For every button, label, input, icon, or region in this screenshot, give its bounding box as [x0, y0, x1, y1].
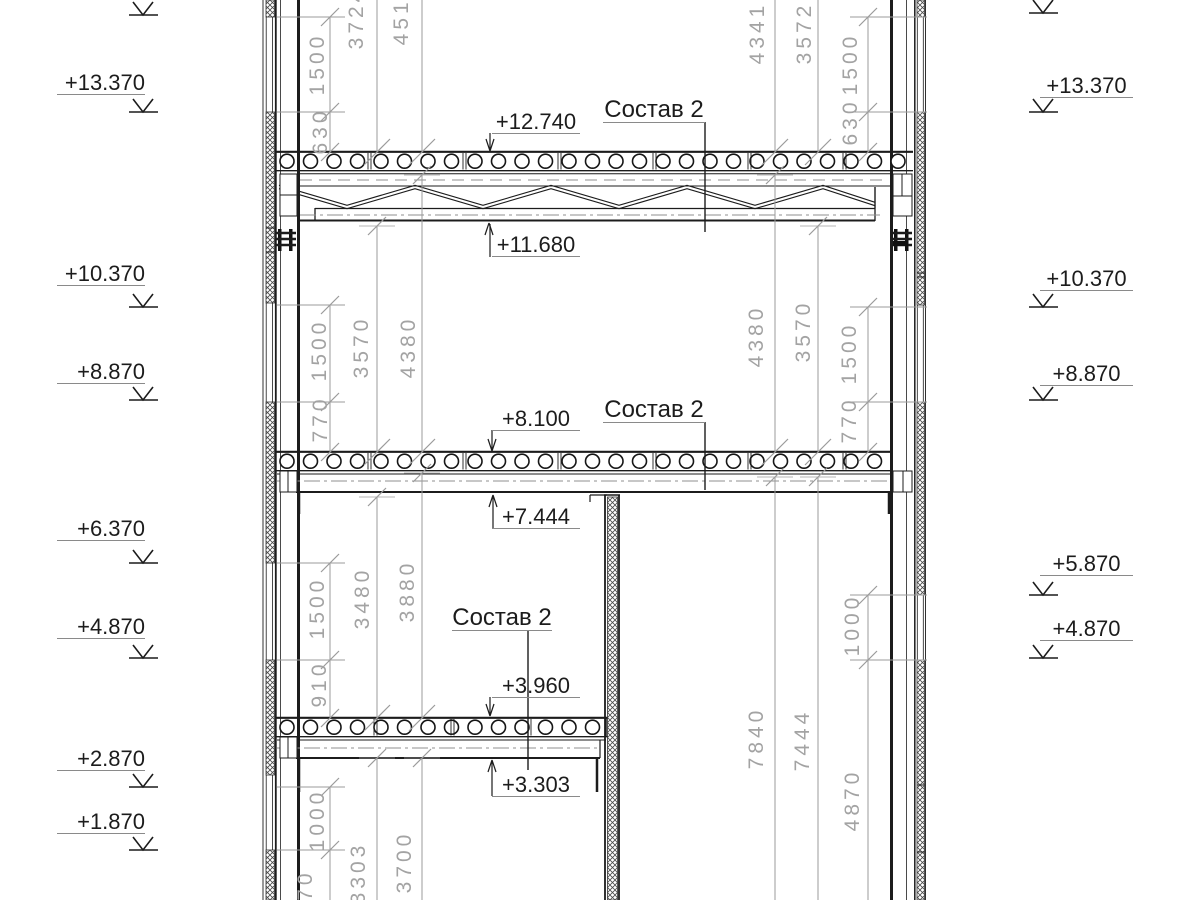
dimension-label: 3480 — [351, 567, 375, 630]
elevation-mark-right-3: +5.870 — [1040, 552, 1133, 576]
elevation-mark-left-0: +13.370 — [57, 71, 145, 95]
elevation-mark-right-4: +4.870 — [1040, 617, 1133, 641]
elevation-mark-left-5: +2.870 — [57, 747, 145, 771]
dimension-label: 3570 — [350, 316, 374, 379]
drawing-linework — [0, 0, 1200, 900]
elevation-mark-right-2: +8.870 — [1040, 362, 1133, 386]
dimension-label: 630 — [309, 107, 333, 154]
dimension-label: 7840 — [745, 707, 769, 770]
dimension-label: 3724 — [345, 0, 369, 49]
composition-label-middle: Состав 2 — [603, 397, 705, 423]
elevation-mark-left-4: +4.870 — [57, 615, 145, 639]
dimension-label: 1000 — [306, 789, 330, 852]
dimension-label: 1000 — [841, 594, 865, 657]
dimension-label: 970 — [294, 869, 318, 900]
elevation-mark-left-2: +8.870 — [57, 360, 145, 384]
dimension-label: 910 — [308, 660, 332, 707]
dimension-label: 7444 — [791, 709, 815, 772]
dimension-label: 1500 — [308, 319, 332, 382]
level-callout-11680: +11.680 — [492, 233, 580, 257]
level-callout-3960: +3.960 — [492, 674, 580, 698]
elevation-mark-left-1: +10.370 — [57, 262, 145, 286]
dimension-label: 3880 — [396, 560, 420, 623]
level-callout-7444: +7.444 — [492, 505, 580, 529]
dimension-label: 3572 — [793, 2, 817, 65]
level-callout-3303: +3.303 — [492, 773, 580, 797]
dimension-label: 630 — [839, 98, 863, 145]
dimension-label: 4516 — [390, 0, 414, 45]
composition-label-top: Состав 2 — [603, 97, 705, 123]
elevation-mark-right-0: +13.370 — [1040, 74, 1133, 98]
dimension-label: 770 — [838, 396, 862, 443]
dimension-label: 4341 — [746, 2, 770, 65]
composition-label-bottom: Состав 2 — [452, 605, 552, 631]
level-callout-8100: +8.100 — [492, 407, 580, 431]
dimension-label: 3570 — [792, 300, 816, 363]
dimension-label: 4870 — [841, 769, 865, 832]
dimension-label: 1500 — [839, 33, 863, 96]
dimension-label: 4380 — [397, 316, 421, 379]
dimension-label: 1500 — [306, 577, 330, 640]
dimension-label: 770 — [309, 395, 333, 442]
dimension-label: 4380 — [745, 305, 769, 368]
elevation-mark-right-1: +10.370 — [1040, 267, 1133, 291]
section-drawing: +13.370 +10.370 +8.870 +6.370 +4.870 +2.… — [0, 0, 1200, 900]
dimension-label: 1500 — [306, 33, 330, 96]
dimension-label: 3700 — [393, 831, 417, 894]
dimension-label: 1500 — [838, 322, 862, 385]
level-callout-12740: +12.740 — [492, 110, 580, 134]
elevation-mark-left-3: +6.370 — [57, 517, 145, 541]
dimension-label: 3303 — [347, 842, 371, 900]
elevation-mark-left-6: +1.870 — [57, 810, 145, 834]
